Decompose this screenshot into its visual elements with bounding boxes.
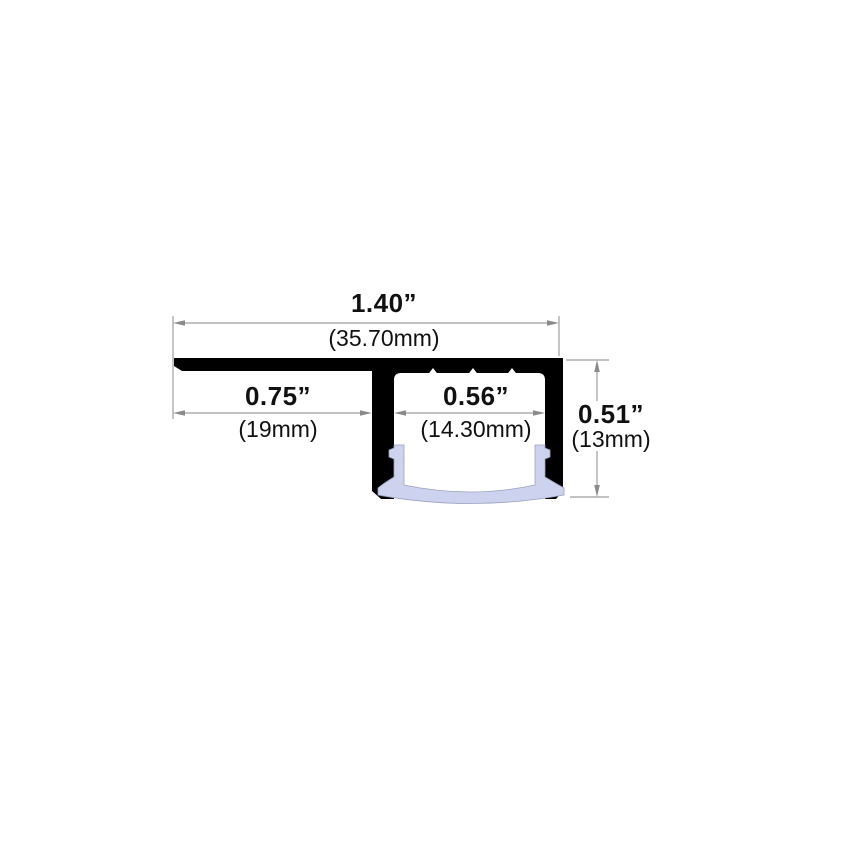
arrow-up-icon [594,360,600,372]
arrow-right-icon [547,320,559,326]
label-channel-opening-inches: 0.56” [443,383,509,410]
label-overall-width-inches: 1.40” [351,290,417,317]
diffuser-lens [378,445,564,504]
arrow-left-icon [394,410,406,416]
drawing-canvas: 1.40” (35.70mm) 0.75” (19mm) 0.56” (14.3… [0,0,850,850]
label-channel-opening-metric: (14.30mm) [420,417,531,441]
label-overall-height-metric: (13mm) [567,427,654,451]
label-overall-width-metric: (35.70mm) [328,326,439,350]
arrow-right-icon [360,410,372,416]
label-overall-height-inches: 0.51” [574,401,648,428]
arrow-right-icon [533,410,545,416]
arrow-left-icon [173,320,185,326]
label-left-flange-inches: 0.75” [245,383,311,410]
arrow-down-icon [594,485,600,497]
label-left-flange-metric: (19mm) [238,417,317,441]
arrow-left-icon [173,410,185,416]
